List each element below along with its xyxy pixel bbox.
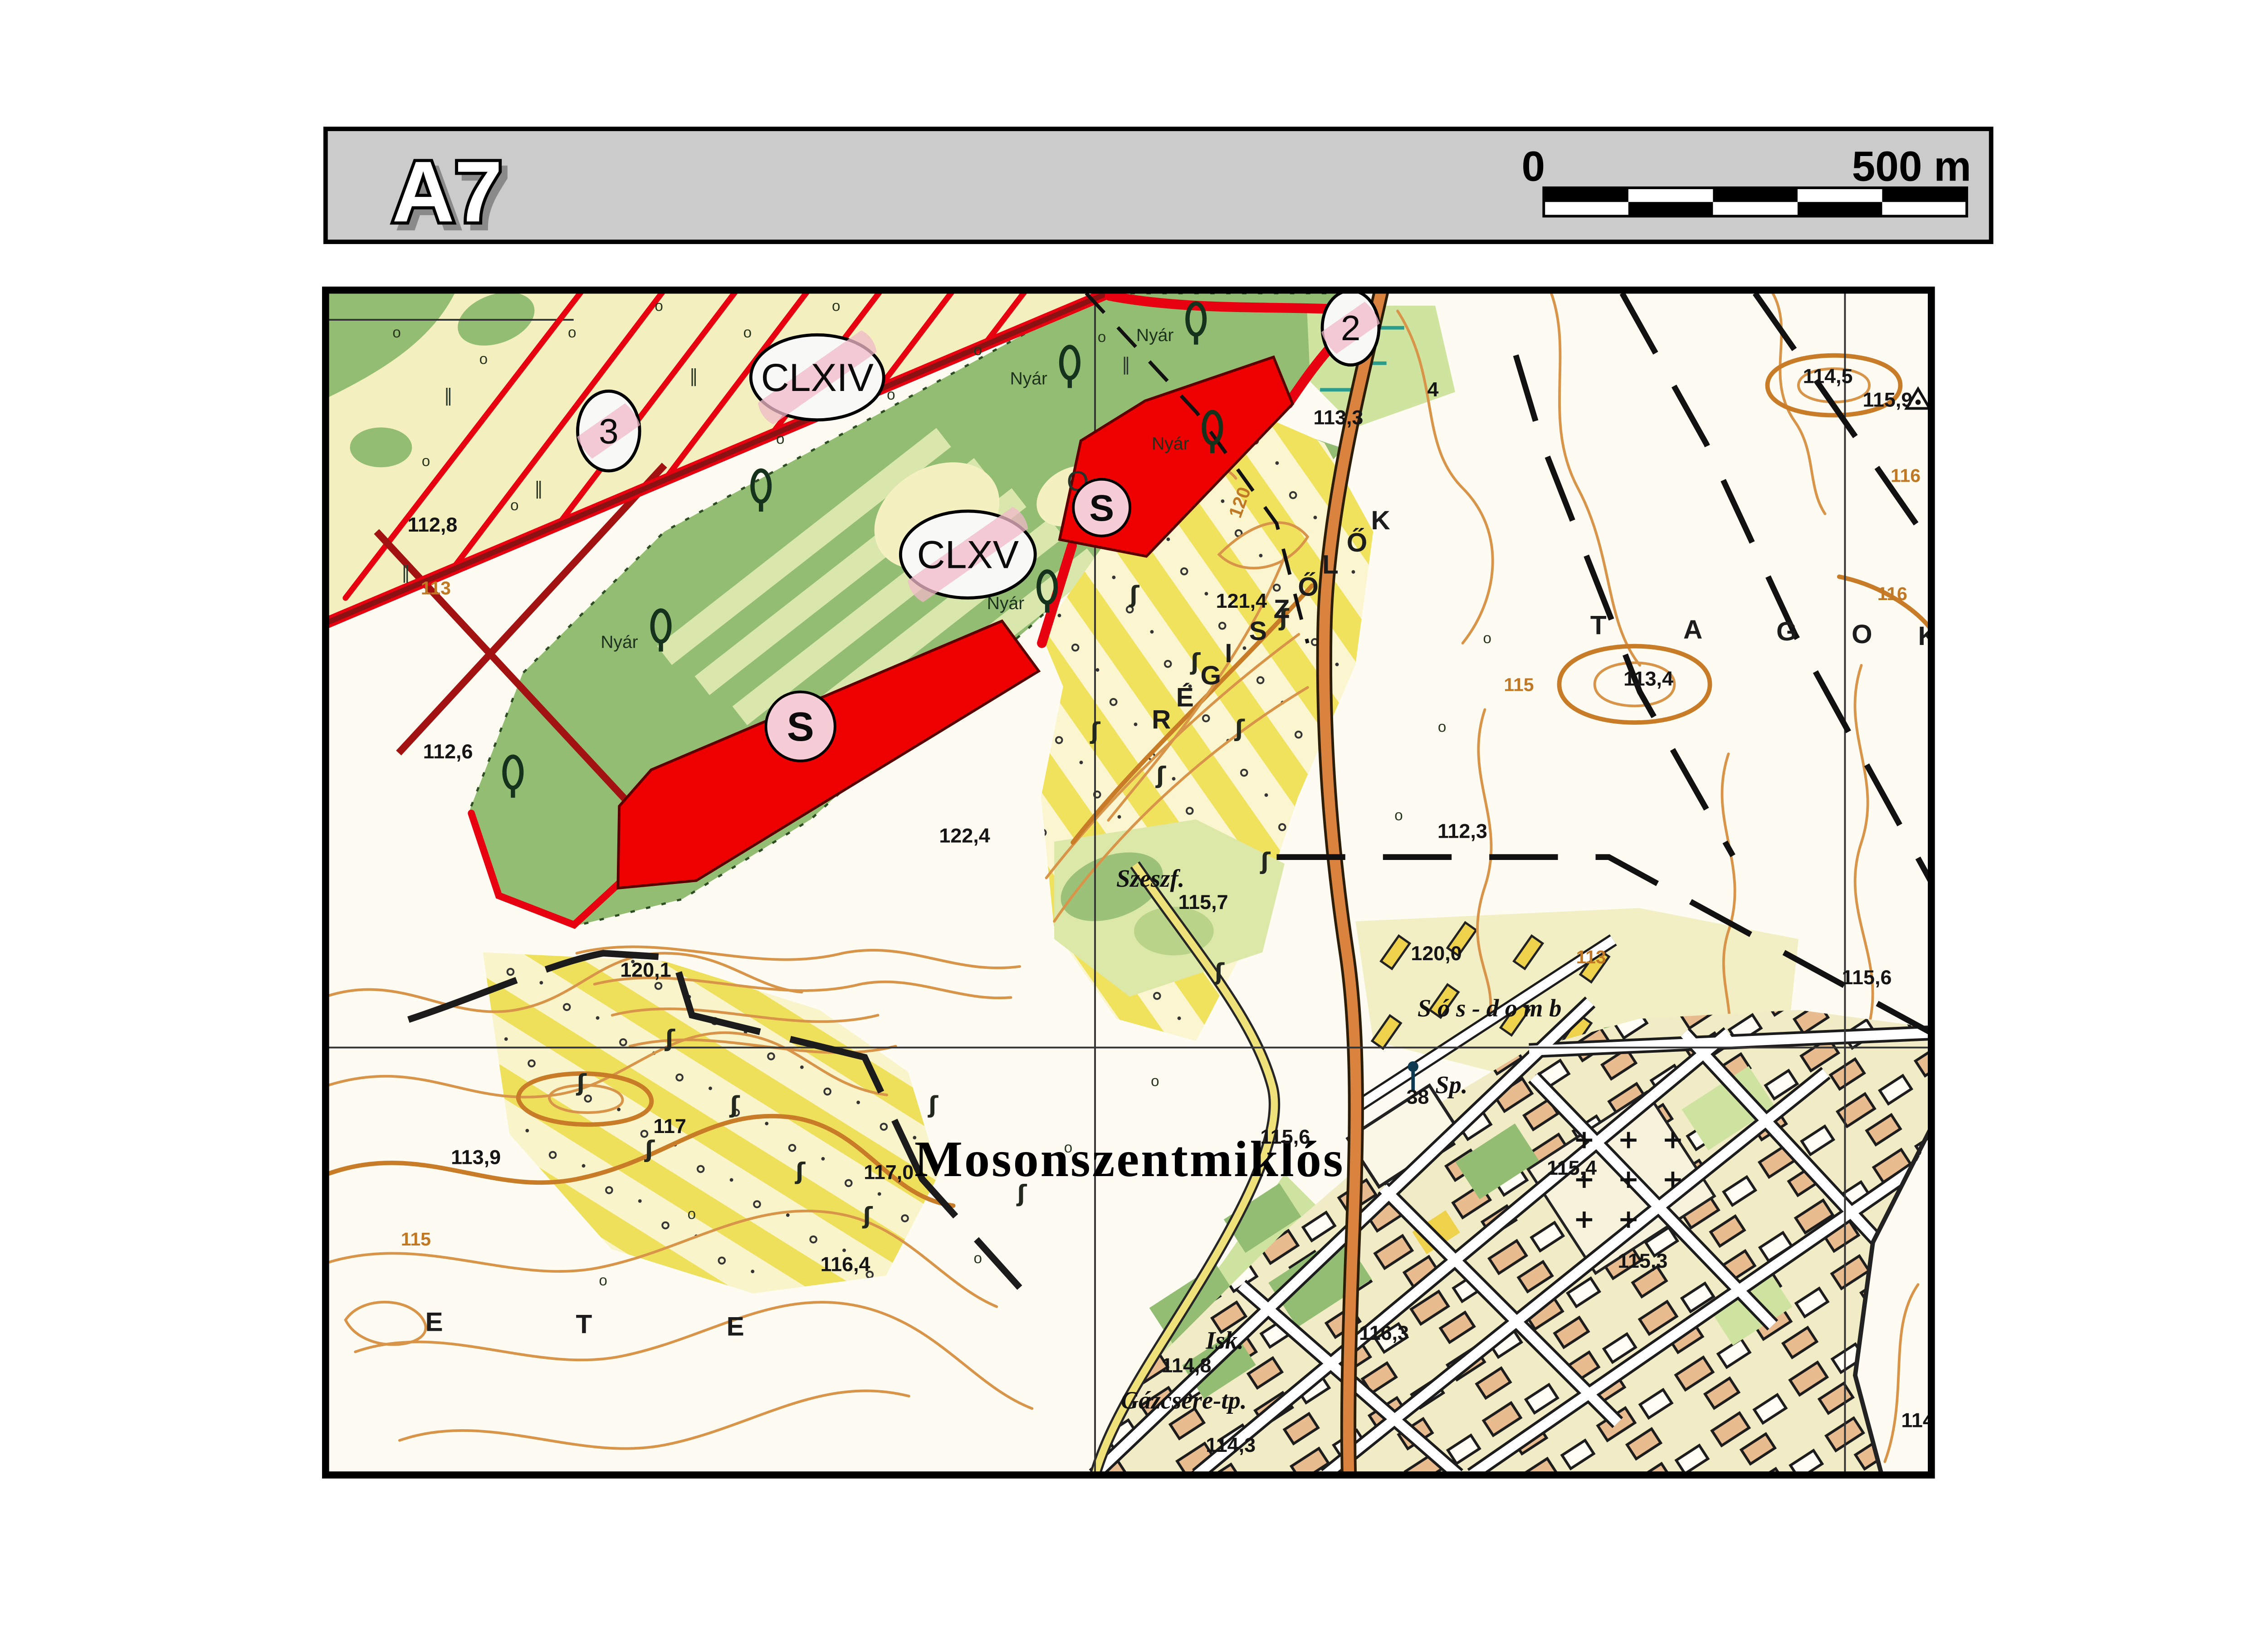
vineyard-symbol-icon: ʃ xyxy=(576,1069,587,1096)
tree-species-label: Nyár xyxy=(1010,369,1047,389)
spot-height-label: 112,3 xyxy=(1437,820,1487,843)
scale-bar xyxy=(1544,188,1967,216)
tree-species-label: Nyár xyxy=(601,633,638,652)
area-letter: E xyxy=(425,1308,443,1337)
control-oval-label: 3 xyxy=(599,411,618,451)
area-letter: G xyxy=(1776,617,1797,646)
spot-height-label: 114,8 xyxy=(1162,1353,1212,1377)
area-letter: S xyxy=(1249,616,1267,646)
tree-row-dot-icon: o xyxy=(510,497,518,514)
spot-height-label: 122,4 xyxy=(939,824,990,847)
tree-row-dot-icon: o xyxy=(973,1250,982,1267)
tree-row-dot-icon: o xyxy=(1098,329,1106,346)
contour-label: 115 xyxy=(1504,674,1534,695)
cemetery-cross-icon: + xyxy=(1662,1164,1683,1194)
cemetery-cross-icon: + xyxy=(1618,1124,1639,1154)
meadow-symbol-icon: ‖ xyxy=(534,479,543,499)
contour-label: 113 xyxy=(421,578,451,599)
spot-height-label: 115,4 xyxy=(1547,1156,1597,1179)
contour-label: 113 xyxy=(1576,947,1606,967)
vineyard-symbol-icon: ʃ xyxy=(1129,581,1139,608)
tree-row-dot-icon: o xyxy=(1394,807,1403,824)
meadow-symbol-icon: ‖ xyxy=(689,366,699,386)
place-label: Gázcsere-tp. xyxy=(1121,1386,1247,1414)
s-marker: S xyxy=(766,692,835,761)
scale-zero-label: 0 xyxy=(1521,142,1545,190)
tree-row-dot-icon: o xyxy=(832,298,840,315)
cemetery-cross-icon: + xyxy=(1662,1124,1683,1154)
place-label: Sós-domb xyxy=(1417,994,1568,1022)
meadow-symbol-icon: ‖ xyxy=(1122,354,1131,375)
map-image: ++++++++ʃʃʃʃʃʃʃʃʃʃʃʃʃʃʃʃ‖‖‖‖‖‖oooooooooo… xyxy=(326,283,1951,1475)
cemetery-cross-icon: + xyxy=(1574,1124,1595,1154)
spot-height-label: 115,6 xyxy=(1260,1125,1310,1148)
meadow-symbol-icon: ‖ xyxy=(401,562,411,583)
scale-end-label: 500 m xyxy=(1852,142,1971,190)
contour-label: 115 xyxy=(401,1229,431,1250)
spot-height-label: 115,6 xyxy=(1842,966,1892,989)
tree-row-dot-icon: o xyxy=(743,324,752,341)
area-letter: T xyxy=(576,1309,592,1339)
spot-height-label: 112,8 xyxy=(407,513,457,536)
tree-row-dot-icon: o xyxy=(655,298,663,315)
vineyard-symbol-icon: ʃ xyxy=(644,1136,655,1162)
area-letter: E xyxy=(727,1312,744,1341)
tree-row-dot-icon: o xyxy=(776,431,784,448)
area-letter: I xyxy=(1225,639,1232,668)
vineyard-symbol-icon: ʃ xyxy=(928,1091,938,1118)
tree-row-dot-icon: o xyxy=(599,1272,607,1289)
area-letter: G xyxy=(1200,661,1221,690)
tree-row-dot-icon: o xyxy=(1483,630,1491,647)
spot-height-label: 114,5 xyxy=(1803,365,1853,388)
spot-height-label: 114,3 xyxy=(1206,1433,1256,1456)
tree-row-dot-icon: o xyxy=(688,1206,696,1223)
spot-height-label: 115,7 xyxy=(1178,890,1228,913)
tree-species-label: Nyár xyxy=(1152,434,1189,454)
area-letter: R xyxy=(1152,705,1171,734)
spot-height-label: 117 xyxy=(653,1114,686,1138)
vineyard-symbol-icon: ʃ xyxy=(795,1158,806,1185)
road-number-label: 4 xyxy=(1427,378,1438,401)
tree-row-dot-icon: o xyxy=(568,324,576,341)
sheet-label: A7 xyxy=(392,144,502,240)
place-label: Isk. xyxy=(1205,1327,1244,1354)
vineyard-symbol-icon: ʃ xyxy=(1214,958,1225,985)
vineyard-symbol-icon: ʃ xyxy=(1190,649,1201,675)
vineyard-symbol-icon: ʃ xyxy=(1260,848,1271,874)
spot-height-label: 113,3 xyxy=(1314,406,1364,429)
area-letter: Ő xyxy=(1298,571,1319,601)
tree-row-dot-icon: o xyxy=(422,453,430,469)
spot-height-label: 117,0 xyxy=(864,1161,914,1184)
area-letter: A xyxy=(1683,615,1702,645)
spot-height-label: 116,4 xyxy=(821,1253,870,1276)
area-letter: T xyxy=(1590,610,1607,640)
place-label: Sp. xyxy=(1435,1071,1467,1099)
meadow-symbol-icon: ‖ xyxy=(444,386,453,406)
contour-label: 116 xyxy=(1877,583,1907,604)
cemetery-cross-icon: + xyxy=(1618,1204,1639,1234)
tree-row-dot-icon: o xyxy=(887,386,895,403)
spot-height-label: 113,4 xyxy=(1623,667,1673,690)
spot-height-label: 115,9 xyxy=(1862,388,1912,411)
area-letter: O xyxy=(1852,620,1872,649)
spot-height-label: 113,9 xyxy=(451,1145,501,1168)
area-letter: K xyxy=(1371,506,1390,535)
vineyard-symbol-icon: ʃ xyxy=(1155,762,1166,789)
tree-row-dot-icon: o xyxy=(1151,1073,1159,1090)
control-oval-label: 2 xyxy=(1341,308,1360,348)
s-marker-label: S xyxy=(787,704,814,750)
spot-height-label: 120,1 xyxy=(620,958,671,981)
forest-patch xyxy=(350,427,412,467)
place-label: Szeszf. xyxy=(1116,864,1184,892)
map-sheet-page: ++++++++ʃʃʃʃʃʃʃʃʃʃʃʃʃʃʃʃ‖‖‖‖‖‖oooooooooo… xyxy=(0,0,2268,1602)
vineyard-symbol-icon: ʃ xyxy=(1234,715,1245,742)
tree-row-dot-icon: o xyxy=(1438,718,1446,735)
area-letter: É xyxy=(1176,683,1194,713)
area-letter: Ő xyxy=(1347,527,1368,557)
vineyard-symbol-icon: ʃ xyxy=(1090,718,1100,744)
spot-height-label: 38 xyxy=(1407,1085,1429,1109)
cemetery-cross-icon: + xyxy=(1618,1164,1639,1194)
cemetery-cross-icon: + xyxy=(1574,1204,1595,1234)
area-letter: L xyxy=(1322,550,1339,580)
vineyard-symbol-icon: ʃ xyxy=(862,1202,873,1229)
header-background xyxy=(326,129,1991,242)
spot-height-label: 121,4 xyxy=(1216,589,1267,612)
area-letter: Z xyxy=(1274,594,1290,624)
spot-height-label: 112,6 xyxy=(423,740,473,763)
control-oval-label: CLXIV xyxy=(761,356,874,400)
contour-label: 116 xyxy=(1891,465,1921,486)
vineyard-symbol-icon: ʃ xyxy=(729,1091,740,1118)
s-marker-label: S xyxy=(1089,488,1114,529)
header-bar: A7 A7 0 500 m xyxy=(326,129,1991,246)
vineyard-symbol-icon: ʃ xyxy=(665,1025,675,1052)
spot-height-label: 116,3 xyxy=(1359,1321,1409,1344)
tree-row-dot-icon: o xyxy=(479,351,488,368)
control-oval-label: CLXV xyxy=(917,533,1019,577)
tree-row-dot-icon: o xyxy=(392,324,401,341)
tree-row-dot-icon: o xyxy=(973,342,982,359)
spot-height-label: 115,3 xyxy=(1618,1249,1667,1272)
tree-species-label: Nyár xyxy=(1136,326,1173,345)
s-marker: S xyxy=(1073,479,1130,536)
spot-height-label: 120,0 xyxy=(1411,942,1461,965)
